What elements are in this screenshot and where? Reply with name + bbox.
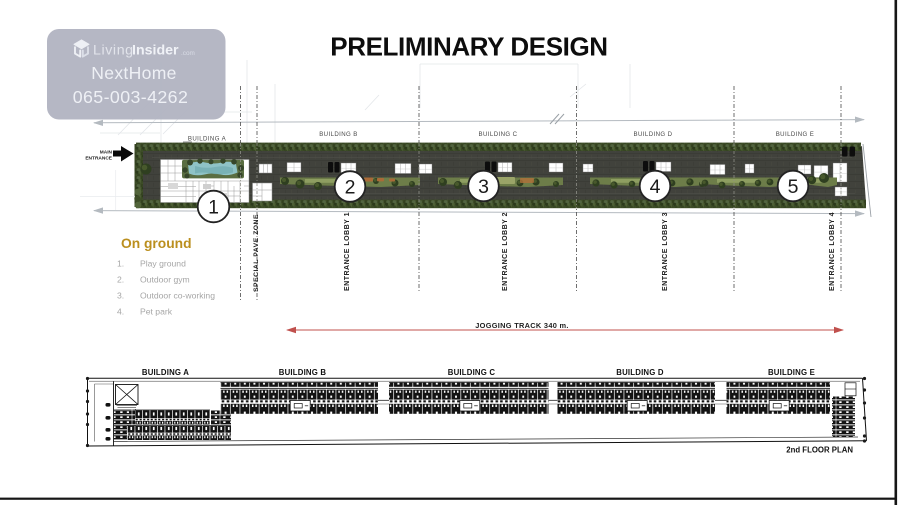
svg-text:BUILDING E: BUILDING E: [776, 131, 815, 138]
svg-text:BUILDING A: BUILDING A: [142, 368, 189, 377]
svg-text:ENTRANCE LOBBY 4: ENTRANCE LOBBY 4: [829, 212, 836, 291]
svg-text:PRELIMINARY DESIGN: PRELIMINARY DESIGN: [330, 32, 607, 62]
svg-text:4.: 4.: [117, 307, 124, 317]
svg-text:ENTRANCE: ENTRANCE: [85, 156, 112, 162]
svg-text:Outdoor co-working: Outdoor co-working: [140, 291, 215, 301]
svg-text:ENTRANCE LOBBY 2: ENTRANCE LOBBY 2: [502, 212, 509, 291]
svg-text:065-003-4262: 065-003-4262: [73, 87, 189, 107]
svg-text:ENTRANCE LOBBY 1: ENTRANCE LOBBY 1: [344, 212, 351, 291]
svg-text:Pet park: Pet park: [140, 307, 173, 317]
svg-text:2.: 2.: [117, 275, 124, 285]
svg-text:3.: 3.: [117, 291, 124, 301]
svg-text:3: 3: [478, 176, 489, 198]
svg-text:1: 1: [208, 197, 219, 219]
svg-text:4: 4: [650, 176, 661, 198]
svg-text:BUILDING C: BUILDING C: [448, 368, 496, 377]
svg-text:BUILDING A: BUILDING A: [188, 136, 227, 143]
svg-text:SPECIAL PAVE ZONE: SPECIAL PAVE ZONE: [253, 214, 260, 292]
svg-text:2nd FLOOR PLAN: 2nd FLOOR PLAN: [786, 446, 853, 455]
svg-text:Insider: Insider: [132, 43, 179, 59]
svg-text:Outdoor gym: Outdoor gym: [140, 275, 190, 285]
svg-text:1.: 1.: [117, 259, 124, 269]
svg-text:BUILDING B: BUILDING B: [319, 131, 358, 138]
svg-text:2: 2: [345, 177, 356, 199]
svg-text:BUILDING B: BUILDING B: [279, 368, 327, 377]
svg-text:5: 5: [788, 176, 799, 198]
svg-text:Living: Living: [93, 43, 134, 59]
svg-text:BUILDING C: BUILDING C: [479, 131, 518, 138]
svg-text:.com: .com: [181, 50, 195, 57]
svg-text:BUILDING E: BUILDING E: [768, 368, 815, 377]
svg-text:On ground: On ground: [121, 236, 192, 251]
svg-text:ENTRANCE LOBBY 3: ENTRANCE LOBBY 3: [662, 212, 669, 291]
svg-text:JOGGING TRACK 340 m.: JOGGING TRACK 340 m.: [475, 321, 568, 330]
svg-text:Play ground: Play ground: [140, 259, 186, 269]
svg-text:BUILDING D: BUILDING D: [616, 368, 664, 377]
svg-text:NextHome: NextHome: [91, 63, 177, 83]
svg-text:BUILDING D: BUILDING D: [634, 131, 673, 138]
svg-text:MAIN: MAIN: [100, 150, 113, 156]
